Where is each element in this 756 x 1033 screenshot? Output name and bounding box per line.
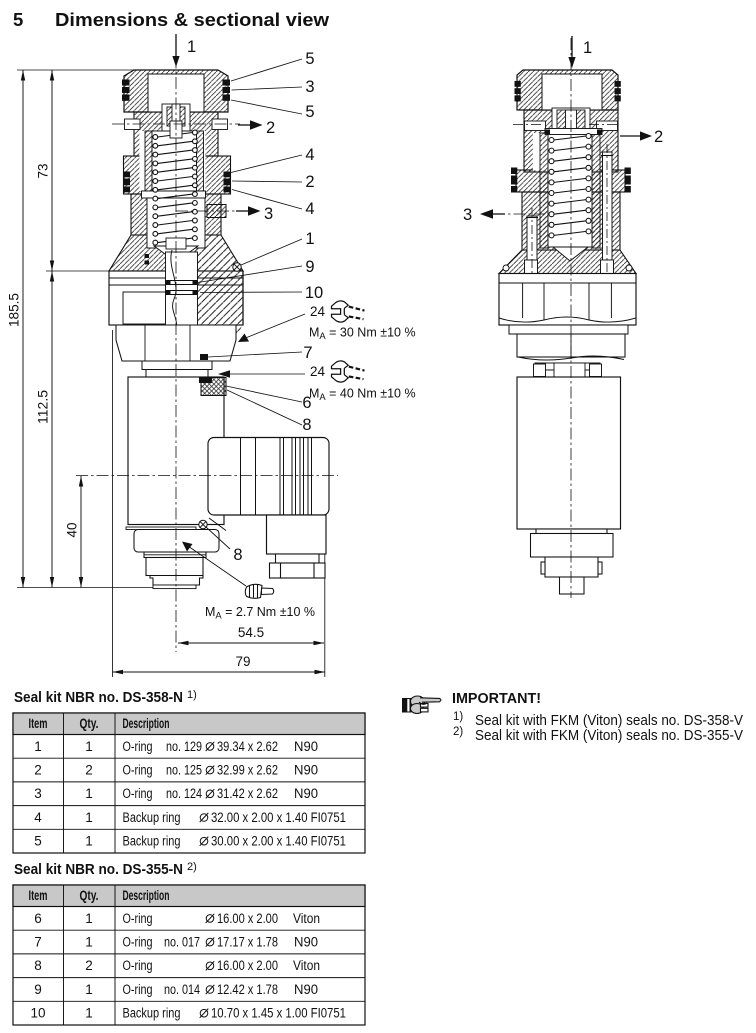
svg-text:3: 3 (34, 786, 42, 801)
svg-text:Item: Item (29, 716, 48, 731)
svg-text:39.34 x 2.62: 39.34 x 2.62 (217, 739, 278, 754)
svg-text:3: 3 (264, 205, 273, 223)
svg-text:10.70 x 1.45 x 1.00 FI0751: 10.70 x 1.45 x 1.00 FI0751 (211, 1006, 346, 1021)
svg-text:5: 5 (34, 834, 42, 849)
svg-text:O-ring: O-ring (123, 958, 153, 973)
svg-text:5: 5 (305, 103, 314, 121)
svg-text:9: 9 (305, 258, 314, 276)
svg-text:2): 2) (453, 726, 463, 738)
svg-text:3: 3 (463, 206, 472, 224)
svg-text:O-ring: O-ring (123, 982, 153, 997)
svg-text:31.42 x 2.62: 31.42 x 2.62 (217, 786, 278, 801)
svg-text:2: 2 (85, 958, 93, 973)
svg-text:N90: N90 (294, 763, 318, 778)
svg-text:112.5: 112.5 (36, 390, 51, 424)
svg-text:Seal kit with FKM (Viton) seal: Seal kit with FKM (Viton) seals no. DS-3… (475, 713, 743, 729)
svg-text:no. 017: no. 017 (164, 935, 200, 950)
svg-text:1: 1 (85, 810, 93, 825)
svg-text:Seal kit NBR no. DS-358-N: Seal kit NBR no. DS-358-N (14, 690, 183, 706)
svg-text:O-ring: O-ring (123, 739, 153, 754)
svg-text:4: 4 (305, 146, 314, 164)
svg-text:9: 9 (34, 982, 42, 997)
svg-text:Backup ring: Backup ring (123, 1006, 181, 1021)
svg-text:4: 4 (34, 810, 42, 825)
svg-text:30.00 x 2.00 x 1.40 FI0751: 30.00 x 2.00 x 1.40 FI0751 (211, 834, 346, 849)
svg-text:Backup ring: Backup ring (123, 834, 181, 849)
svg-text:IMPORTANT!: IMPORTANT! (452, 691, 541, 707)
svg-text:5: 5 (13, 9, 23, 30)
svg-text:no. 129: no. 129 (166, 739, 202, 754)
svg-text:73: 73 (36, 163, 51, 178)
svg-text:2: 2 (34, 763, 42, 778)
svg-text:10: 10 (30, 1006, 45, 1021)
svg-text:Item: Item (29, 888, 48, 903)
svg-text:2): 2) (187, 861, 197, 873)
svg-text:32.00 x 2.00 x 1.40 FI0751: 32.00 x 2.00 x 1.40 FI0751 (211, 810, 346, 825)
svg-text:3: 3 (305, 78, 314, 96)
svg-text:Description: Description (123, 716, 170, 731)
svg-text:1: 1 (85, 982, 93, 997)
svg-text:Qty.: Qty. (80, 716, 99, 731)
svg-text:O-ring: O-ring (123, 763, 153, 778)
svg-text:O-ring: O-ring (123, 911, 153, 926)
svg-text:5: 5 (305, 50, 314, 68)
svg-text:7: 7 (303, 344, 312, 362)
svg-text:N90: N90 (294, 982, 318, 997)
svg-text:O-ring: O-ring (123, 786, 153, 801)
svg-text:1: 1 (85, 786, 93, 801)
svg-text:Description: Description (123, 888, 170, 903)
svg-text:Seal kit with FKM (Viton) seal: Seal kit with FKM (Viton) seals no. DS-3… (475, 728, 743, 744)
svg-text:1: 1 (187, 38, 196, 56)
svg-text:4: 4 (305, 200, 314, 218)
svg-text:17.17 x 1.78: 17.17 x 1.78 (217, 935, 278, 950)
svg-text:54.5: 54.5 (238, 625, 264, 640)
svg-text:8: 8 (302, 416, 311, 434)
svg-text:6: 6 (34, 911, 42, 926)
svg-text:Backup ring: Backup ring (123, 810, 181, 825)
svg-text:185.5: 185.5 (7, 293, 22, 327)
svg-text:N90: N90 (294, 935, 318, 950)
svg-text:MA = 30 Nm ±10 %: MA = 30 Nm ±10 % (309, 326, 416, 341)
svg-text:12.42 x 1.78: 12.42 x 1.78 (217, 982, 278, 997)
svg-text:no. 124: no. 124 (166, 786, 202, 801)
svg-text:no. 014: no. 014 (164, 982, 200, 997)
svg-text:2: 2 (85, 763, 93, 778)
svg-text:79: 79 (235, 654, 250, 669)
svg-text:40: 40 (65, 522, 80, 537)
svg-text:1): 1) (453, 711, 463, 723)
svg-text:Viton: Viton (293, 958, 320, 973)
svg-text:16.00 x 2.00: 16.00 x 2.00 (217, 958, 278, 973)
svg-text:Seal kit NBR no. DS-355-N: Seal kit NBR no. DS-355-N (14, 862, 183, 878)
svg-text:MA = 2.7 Nm ±10 %: MA = 2.7 Nm ±10 % (205, 605, 315, 620)
svg-text:8: 8 (34, 958, 42, 973)
svg-text:Dimensions & sectional view: Dimensions & sectional view (55, 9, 330, 30)
svg-text:1: 1 (583, 39, 592, 57)
svg-text:1: 1 (34, 739, 42, 754)
svg-text:1: 1 (85, 935, 93, 950)
svg-text:32.99 x 2.62: 32.99 x 2.62 (217, 763, 278, 778)
svg-text:1: 1 (85, 739, 93, 754)
svg-text:16.00 x 2.00: 16.00 x 2.00 (217, 911, 278, 926)
svg-text:7: 7 (34, 935, 42, 950)
svg-text:Viton: Viton (293, 911, 320, 926)
svg-text:1): 1) (187, 689, 197, 701)
svg-text:MA = 40 Nm ±10 %: MA = 40 Nm ±10 % (309, 387, 416, 402)
svg-text:10: 10 (305, 284, 323, 302)
svg-text:no. 125: no. 125 (166, 763, 202, 778)
svg-text:N90: N90 (294, 739, 318, 754)
svg-text:1: 1 (85, 834, 93, 849)
svg-text:2: 2 (305, 173, 314, 191)
svg-text:2: 2 (654, 128, 663, 146)
svg-text:N90: N90 (294, 786, 318, 801)
svg-text:8: 8 (233, 546, 242, 564)
svg-text:1: 1 (85, 1006, 93, 1021)
svg-text:2: 2 (266, 119, 275, 137)
svg-text:Qty.: Qty. (80, 888, 99, 903)
svg-text:1: 1 (85, 911, 93, 926)
svg-text:24: 24 (310, 304, 326, 319)
svg-text:O-ring: O-ring (123, 935, 153, 950)
svg-text:24: 24 (310, 364, 326, 379)
svg-text:1: 1 (305, 230, 314, 248)
